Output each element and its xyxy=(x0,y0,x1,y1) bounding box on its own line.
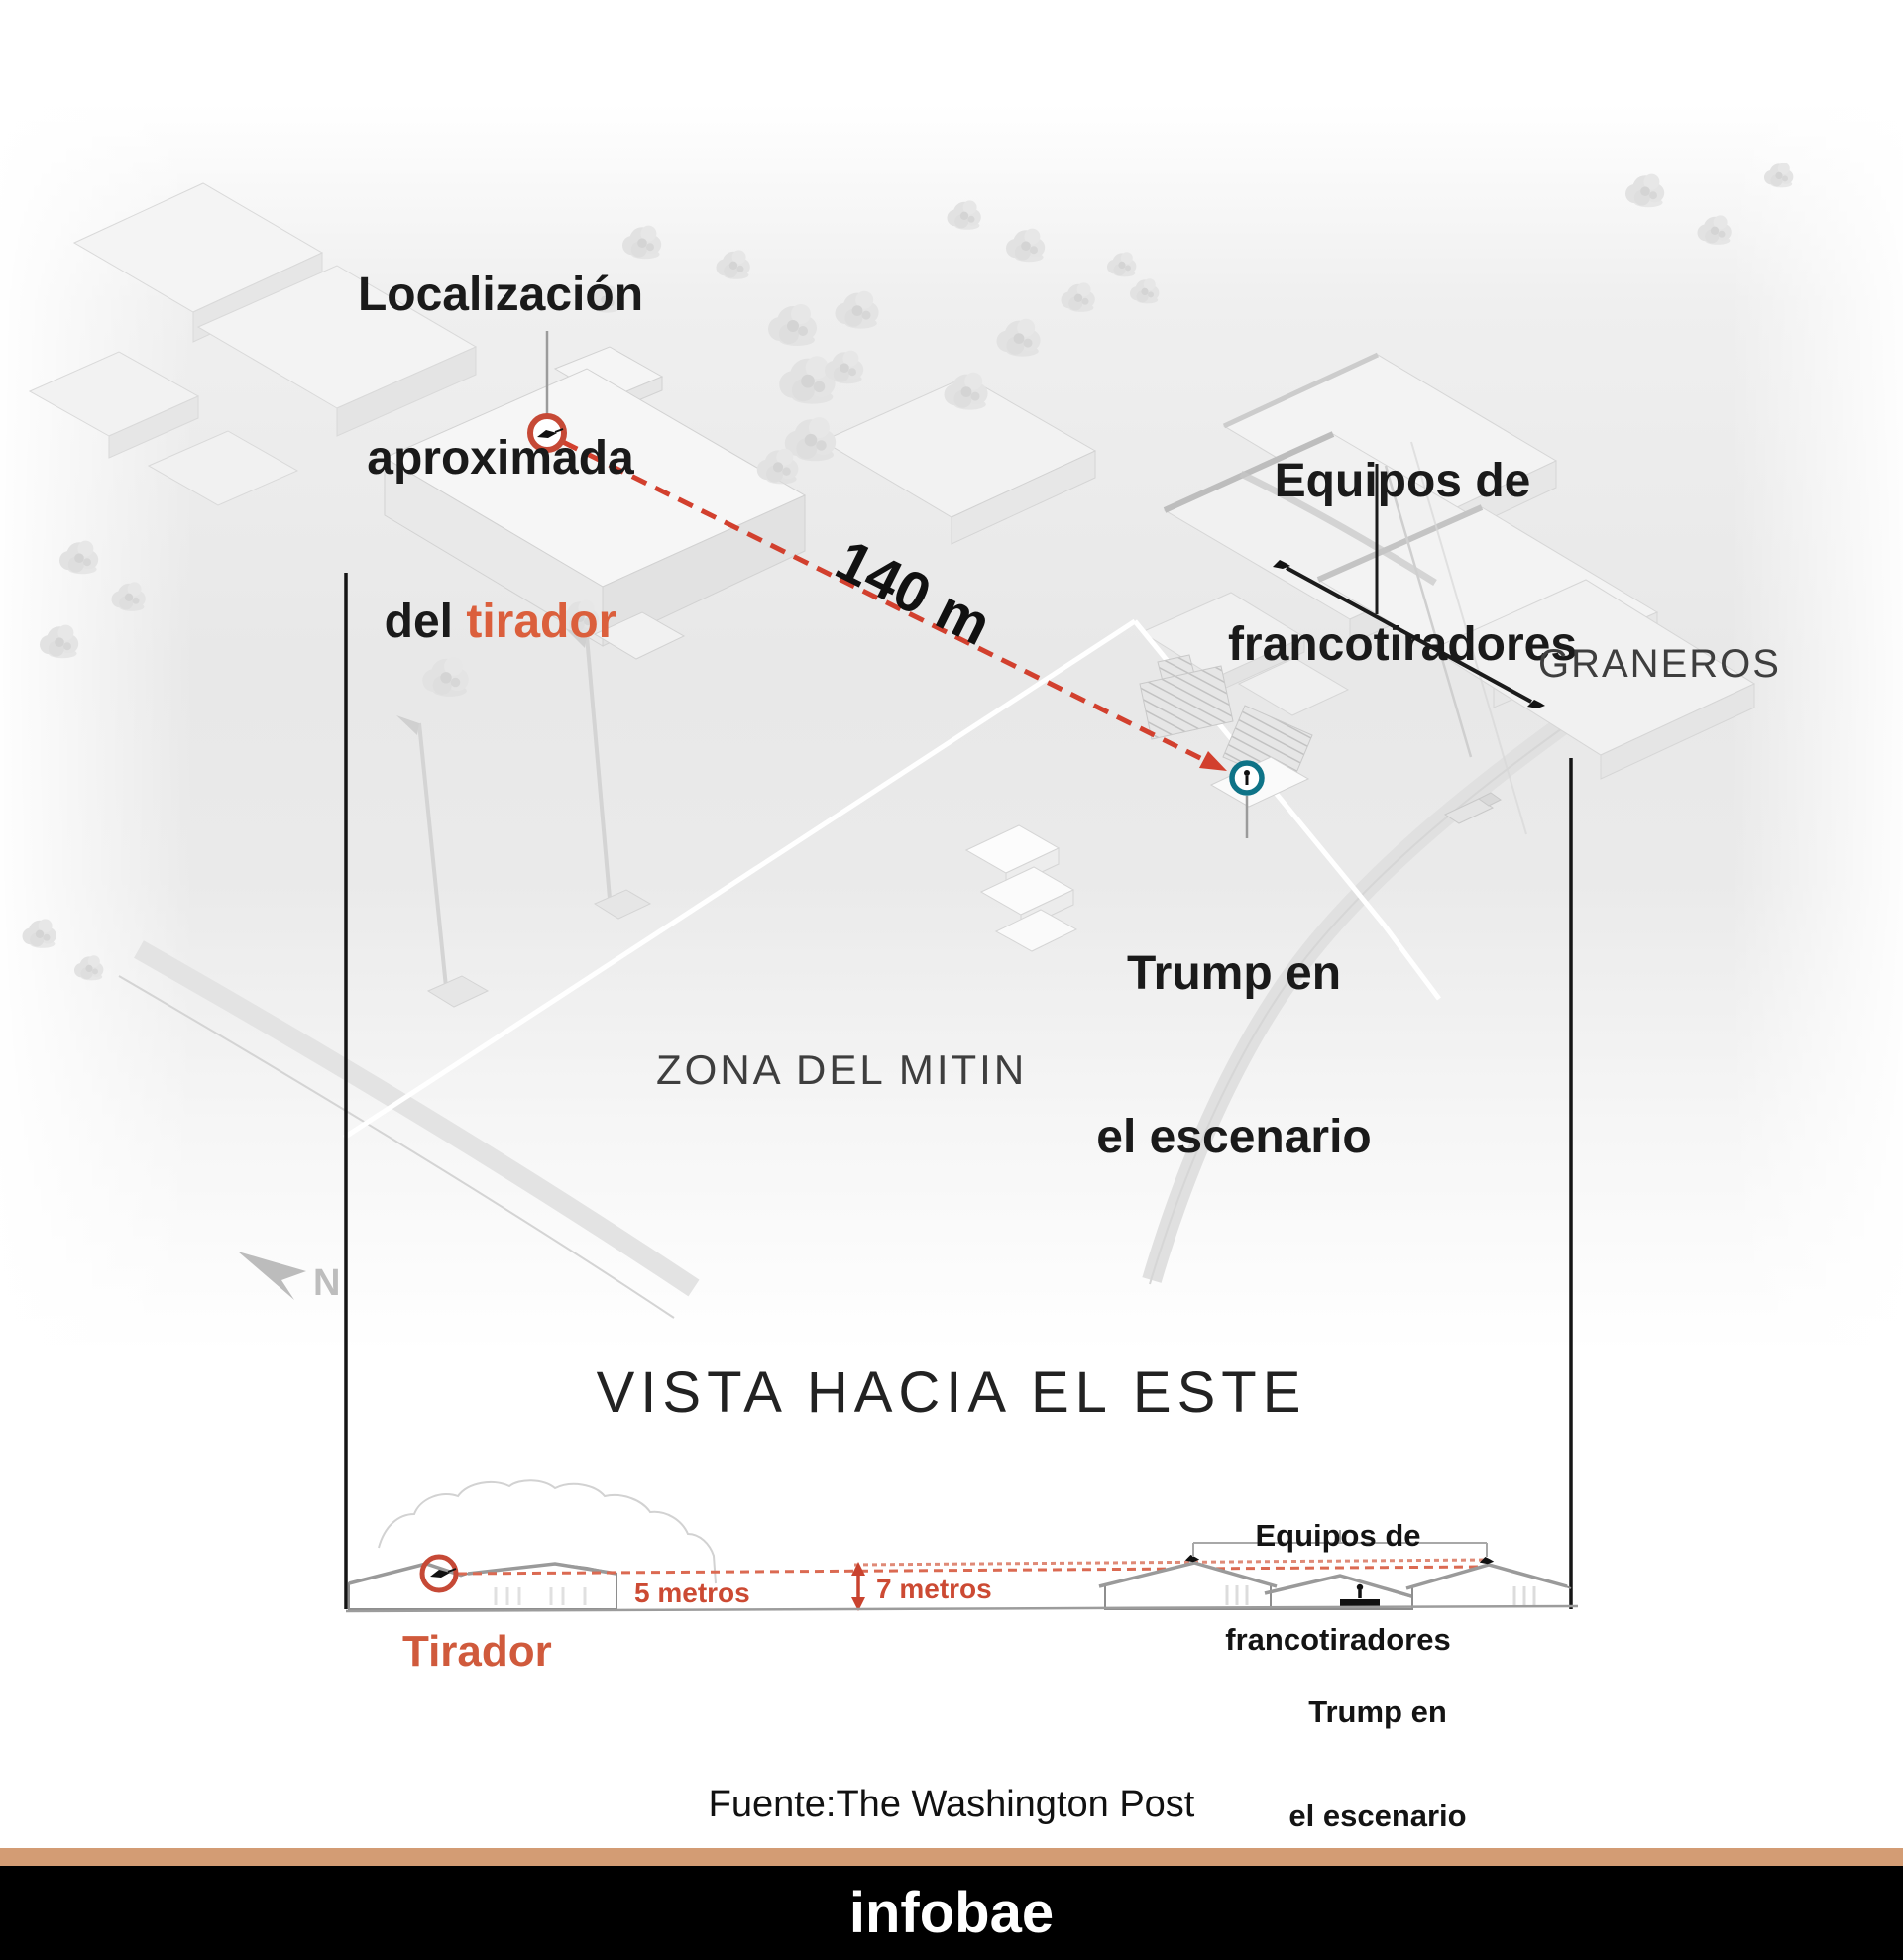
shooter-location-line3: del tirador xyxy=(302,595,699,649)
shooter-location-line2: aproximada xyxy=(302,431,699,486)
shooter-location-line3-prefix: del xyxy=(385,596,467,648)
map-illustration: N xyxy=(0,0,1903,1744)
sniper-teams-line1: Equipos de xyxy=(1184,454,1621,508)
rally-zone-label: ZONA DEL MITIN xyxy=(656,1046,1027,1094)
source-label: Fuente:The Washington Post xyxy=(654,1784,1249,1826)
trump-stage-line1: Trump en xyxy=(1036,946,1432,1001)
sniper-teams-label-map: Equipos de francotiradores xyxy=(1184,345,1621,781)
footer: infobae xyxy=(0,1866,1903,1960)
barns-label: GRANEROS xyxy=(1538,642,1781,687)
trump-stage-line2: el escenario xyxy=(1036,1110,1432,1164)
shooter-height-label: 5 metros xyxy=(634,1578,750,1609)
shooter-location-line3-accent: tirador xyxy=(466,596,616,648)
section-sniper-line1: Equipos de xyxy=(1135,1518,1541,1553)
shooter-location-line1: Localización xyxy=(302,268,699,322)
shooter-location-label: Localización aproximada del tirador xyxy=(302,159,699,758)
sniper-height-label: 7 metros xyxy=(876,1574,992,1605)
section-shooter-building xyxy=(349,1564,616,1609)
footer-accent-bar xyxy=(0,1848,1903,1866)
section-trump-line1: Trump en xyxy=(1179,1694,1576,1729)
infographic-root: N xyxy=(0,0,1903,1960)
view-title: VISTA HACIA EL ESTE xyxy=(555,1360,1348,1426)
north-label: N xyxy=(313,1262,340,1304)
section-shooter-label: Tirador xyxy=(402,1627,552,1677)
trump-stage-label-map: Trump en el escenario xyxy=(1036,837,1432,1273)
height-arrow xyxy=(851,1562,865,1611)
brand-logo: infobae xyxy=(849,1880,1054,1946)
